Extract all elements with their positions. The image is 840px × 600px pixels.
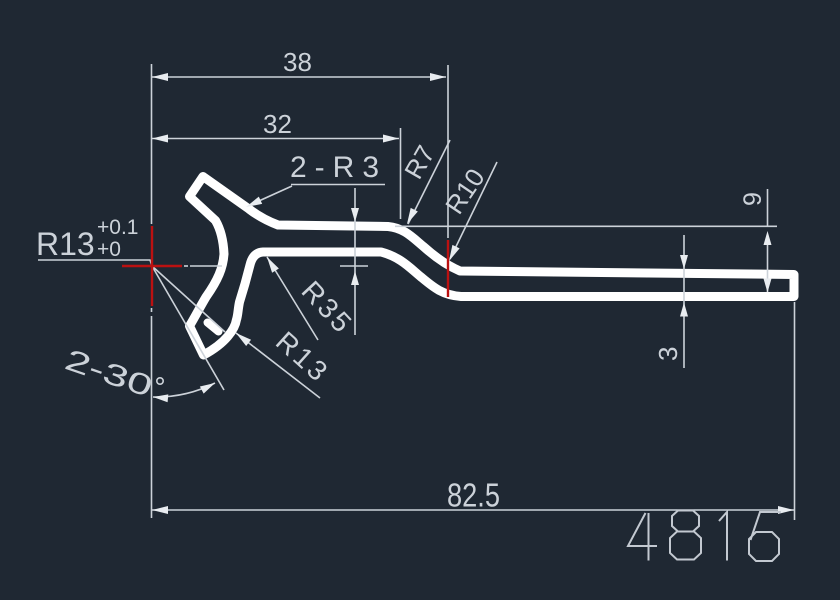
svg-text:2-R3: 2-R3 [290, 151, 387, 184]
svg-text:+0: +0 [97, 238, 121, 261]
svg-text:3: 3 [653, 347, 683, 361]
svg-text:R13: R13 [36, 226, 95, 262]
svg-text:9: 9 [739, 192, 767, 206]
svg-text:38: 38 [283, 47, 312, 77]
svg-text:32: 32 [263, 109, 292, 139]
svg-text:+0.1: +0.1 [97, 216, 138, 239]
svg-text:82.5: 82.5 [447, 477, 500, 514]
